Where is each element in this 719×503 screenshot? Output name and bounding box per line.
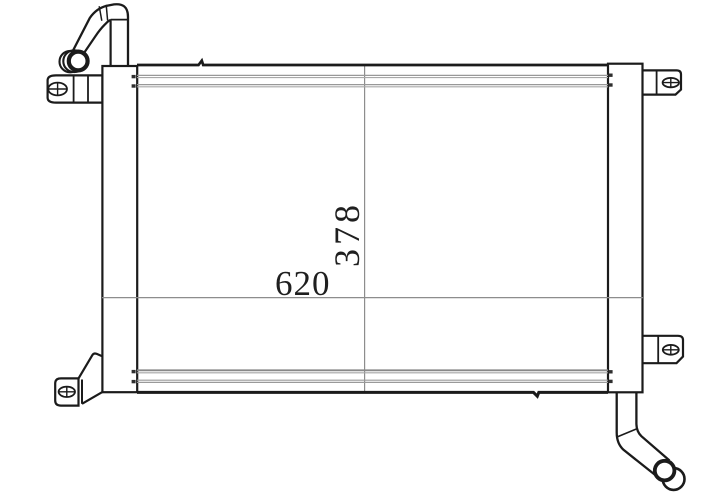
inlet-pipe [59, 4, 128, 72]
bracket-top-right [642, 70, 681, 94]
outlet-pipe [617, 392, 685, 490]
condenser-core [132, 61, 613, 397]
slot-hole [663, 78, 679, 88]
left-header-tank [102, 66, 137, 392]
dimension-lines [102, 65, 643, 393]
bracket-mid-right [642, 336, 683, 363]
core-bottom-edge [137, 392, 608, 396]
condenser-technical-drawing: 620 378 [0, 0, 719, 503]
dimension-height-label: 378 [329, 201, 365, 267]
right-header-tank [608, 64, 643, 393]
bracket-top-left [48, 75, 103, 102]
bracket-bottom-left [55, 353, 102, 405]
slot-hole [663, 345, 679, 355]
dimension-width-label: 620 [275, 266, 331, 301]
outlet-pipe-joint-line [617, 429, 637, 437]
slot-hole [58, 386, 75, 397]
inlet-fitting-ring [59, 50, 87, 72]
core-top-edge [137, 61, 608, 65]
slot-hole [48, 83, 67, 96]
outlet-fitting-ring [655, 461, 685, 490]
fin-band-tick-dots [132, 74, 613, 384]
